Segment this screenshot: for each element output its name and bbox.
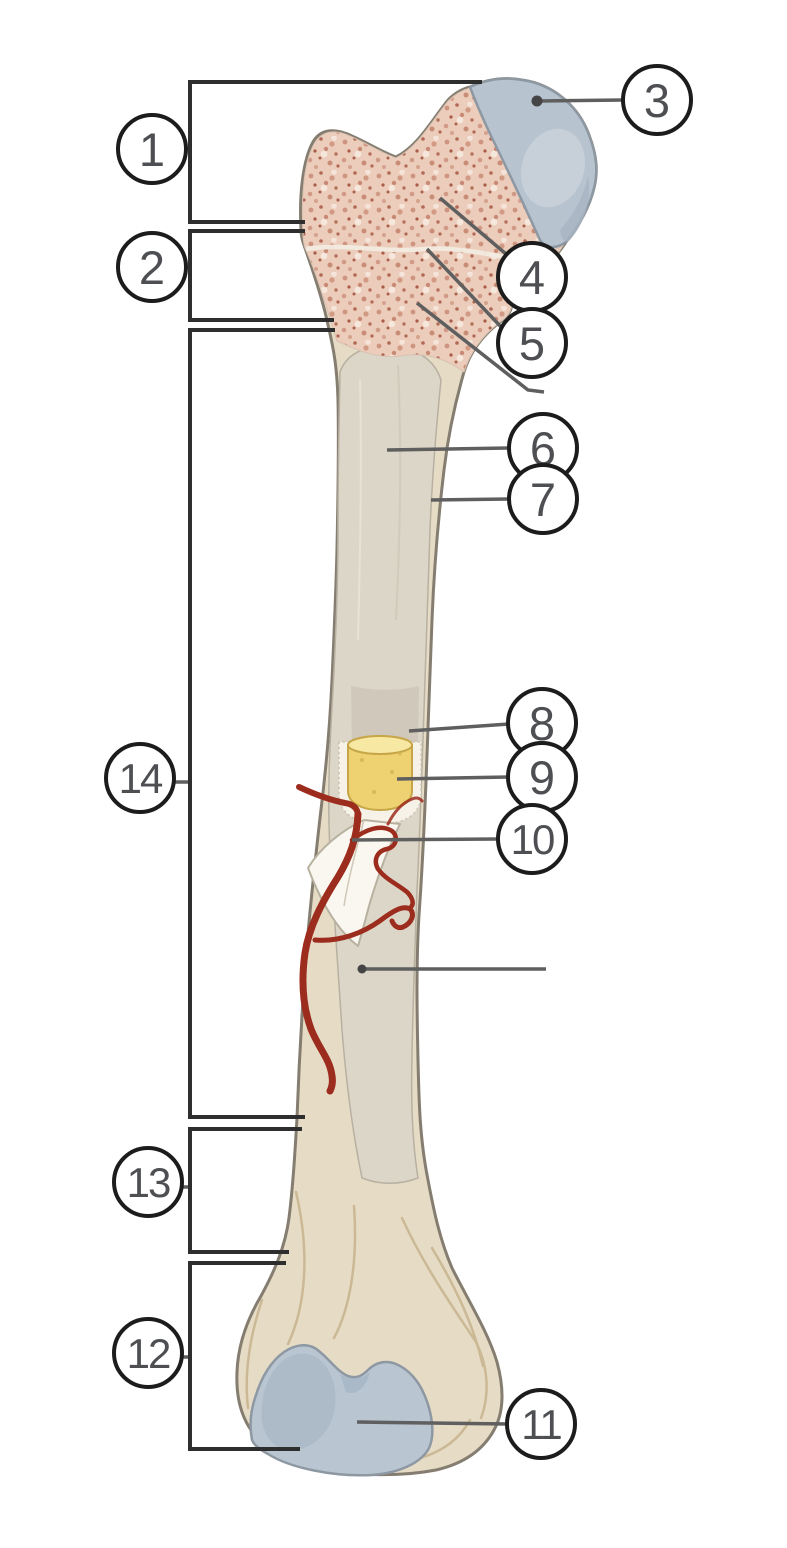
leader-line-6 bbox=[387, 448, 509, 450]
leader-line-3 bbox=[537, 100, 623, 101]
label-marker-7[interactable]: 7 bbox=[509, 465, 577, 533]
label-number-3: 3 bbox=[644, 74, 670, 127]
label-marker-12[interactable]: 12 bbox=[114, 1319, 182, 1387]
label-marker-13[interactable]: 13 bbox=[114, 1148, 182, 1216]
label-number-1: 1 bbox=[139, 123, 165, 176]
leader-line-11 bbox=[357, 1422, 508, 1424]
label-number-7: 7 bbox=[530, 473, 556, 526]
leader-line-10 bbox=[352, 839, 499, 840]
leader-dot-artery bbox=[358, 965, 367, 974]
label-number-2: 2 bbox=[139, 241, 165, 294]
label-number-10: 10 bbox=[511, 816, 554, 863]
label-marker-2[interactable]: 2 bbox=[118, 233, 186, 301]
leader-line-7 bbox=[431, 499, 510, 500]
label-number-9: 9 bbox=[529, 751, 555, 804]
bone-diagram-page: 1234567891011121314 bbox=[0, 0, 787, 1548]
label-number-14: 14 bbox=[119, 755, 163, 802]
label-marker-14[interactable]: 14 bbox=[106, 744, 174, 812]
leader-line-9 bbox=[397, 777, 509, 779]
label-marker-4[interactable]: 4 bbox=[498, 243, 566, 311]
label-marker-1[interactable]: 1 bbox=[118, 115, 186, 183]
label-number-5: 5 bbox=[519, 317, 545, 370]
label-marker-9[interactable]: 9 bbox=[508, 743, 576, 811]
label-number-4: 4 bbox=[519, 251, 545, 304]
label-number-13: 13 bbox=[127, 1159, 170, 1206]
yellow-marrow bbox=[348, 736, 412, 810]
label-marker-3[interactable]: 3 bbox=[623, 66, 691, 134]
label-marker-10[interactable]: 10 bbox=[498, 805, 566, 873]
bone-diagram: 1234567891011121314 bbox=[0, 0, 787, 1548]
label-number-11: 11 bbox=[521, 1401, 561, 1448]
label-marker-5[interactable]: 5 bbox=[498, 309, 566, 377]
leader-dot-3 bbox=[532, 96, 543, 107]
label-number-12: 12 bbox=[127, 1330, 170, 1377]
bracket-13 bbox=[190, 1129, 300, 1252]
label-marker-11[interactable]: 11 bbox=[507, 1390, 575, 1458]
